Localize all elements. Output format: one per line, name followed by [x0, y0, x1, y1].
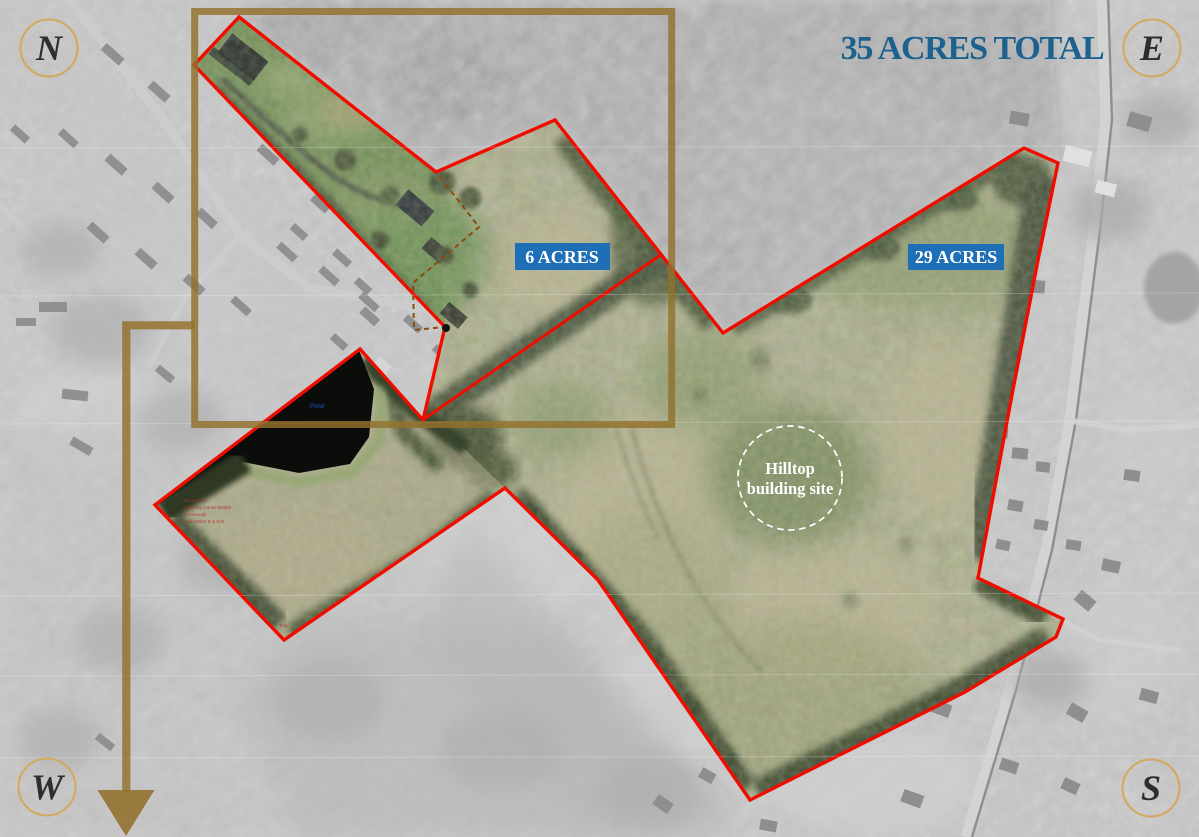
svg-text:building site: building site [747, 479, 834, 498]
svg-text:S: S [1141, 768, 1161, 808]
svg-text:W: W [31, 767, 66, 807]
svg-text:N: N [35, 28, 64, 68]
svg-text:29 ACRES: 29 ACRES [915, 247, 998, 267]
svg-text:Call Center B & Son: Call Center B & Son [184, 519, 225, 524]
svg-text:Pond: Pond [310, 404, 324, 410]
svg-text:Tony: Tony [279, 623, 289, 628]
svg-text:McKinley Carter Wealth: McKinley Carter Wealth [184, 505, 232, 510]
svg-text:Hilltop: Hilltop [765, 459, 815, 478]
svg-text:6 ACRES: 6 ACRES [525, 247, 599, 267]
svg-text:E: E [1139, 28, 1164, 68]
svg-text:Greenough: Greenough [184, 512, 207, 517]
svg-text:35 ACRES TOTAL: 35 ACRES TOTAL [841, 30, 1104, 67]
svg-text:Wood Field: Wood Field [184, 498, 207, 503]
